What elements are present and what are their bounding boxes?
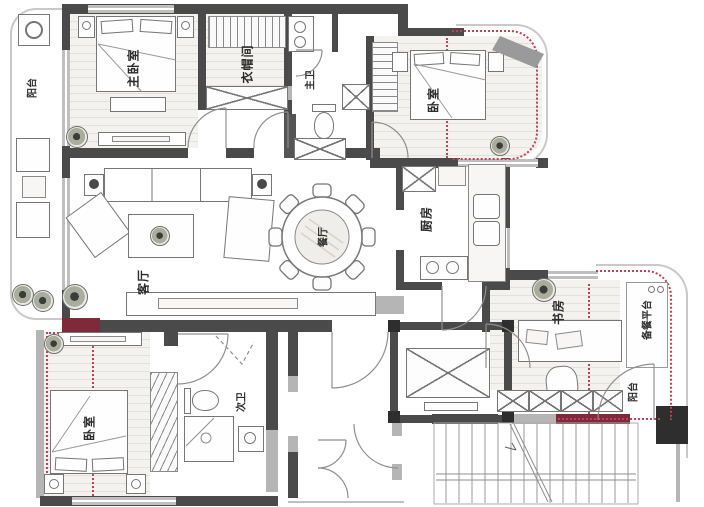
wall-hall-bottom — [226, 148, 254, 158]
study-sill-box — [529, 390, 561, 412]
door-corridor-top — [332, 332, 388, 388]
balcony-chair-1 — [16, 138, 50, 172]
cloakroom-cabinet — [206, 86, 288, 110]
window-master-top — [88, 5, 174, 13]
wardrobe-bedroom3 — [150, 372, 178, 472]
jamb-corridor-4 — [392, 464, 402, 480]
side-table-speaker — [89, 179, 99, 189]
papers — [525, 329, 548, 345]
study-sill-box — [593, 390, 623, 412]
shower-bath2 — [184, 416, 234, 462]
door-bedroom3 — [178, 334, 228, 384]
study-sill-box — [561, 390, 593, 412]
balcony-chair-2 — [16, 202, 50, 238]
elevator-corner-1 — [388, 320, 400, 332]
wall-master-bottom — [62, 148, 188, 158]
red-line-balcony-right — [558, 418, 660, 420]
washing-machine-drum — [25, 21, 43, 39]
wall-elevator-left — [390, 322, 398, 423]
jamb-corridor-2 — [288, 436, 298, 452]
sink-basin — [294, 21, 306, 33]
room-label-bathroom-second: 次卫 — [233, 392, 248, 412]
nightstand — [392, 52, 408, 72]
toilet-bowl-master — [314, 112, 334, 139]
burner — [426, 261, 439, 274]
elevator-corner-3 — [388, 411, 400, 423]
nightstand — [488, 52, 504, 72]
jamb-corridor-1 — [288, 376, 298, 392]
toilet-tank-master — [312, 104, 336, 112]
side-table-speaker — [257, 179, 267, 189]
lamp — [181, 21, 190, 30]
wall-kitchen-bottom-left — [398, 282, 442, 290]
wall-corridor-left-upper — [288, 330, 298, 376]
wall-bath-partition — [332, 14, 338, 52]
wall-bedroom-cloakroom — [198, 14, 206, 110]
pillow — [450, 52, 481, 66]
fridge — [402, 166, 436, 192]
bed-bench — [110, 97, 166, 112]
pillow — [140, 19, 173, 34]
room-label-living-room: 客厅 — [135, 269, 152, 295]
pillow — [414, 52, 445, 66]
wall-living-maroon — [62, 318, 100, 332]
window-bedroom3-bottom — [72, 497, 176, 505]
kitchen-counter-top — [438, 166, 466, 186]
study-sill-box — [497, 390, 529, 412]
tv-set — [158, 298, 298, 309]
elevator-corner-4 — [502, 411, 514, 423]
armchair-right — [223, 196, 274, 262]
toilet-tank-bath2 — [184, 388, 191, 414]
lamp — [49, 479, 59, 489]
burner — [446, 261, 459, 274]
lamp — [82, 21, 91, 30]
wall-bedroom3-top-block — [164, 330, 178, 346]
kitchen-sink-2 — [473, 221, 500, 246]
pillow — [55, 457, 88, 472]
clothes-rail — [208, 16, 286, 48]
elevator-shaft — [406, 348, 490, 398]
room-label-study: 书房 — [550, 299, 567, 325]
wall-elevator-bottom — [390, 415, 512, 423]
kitchen-sink-1 — [473, 194, 500, 219]
room-label-prep-platform: 备餐平台 — [639, 300, 654, 340]
wall-bath2-right-gray — [266, 430, 278, 492]
door-bath2-folding — [216, 336, 254, 364]
wall-corridor-left-lower — [288, 452, 298, 498]
toilet-bowl-bath2 — [192, 390, 219, 411]
floor-plan-canvas: 阳台 主卧室 衣帽间 主卫 卧室 客厅 餐厅 厨房 书房 备餐平台 阳台 卧室 … — [0, 0, 704, 507]
prep-knob — [657, 286, 664, 293]
elevator-door — [424, 402, 478, 411]
wall-joint-top — [398, 4, 408, 36]
plant-balcony-2 — [32, 290, 54, 312]
dresser-inner — [112, 136, 170, 142]
door-corridor-bottom — [318, 468, 348, 498]
room-label-bedroom-upper-right: 卧室 — [425, 87, 442, 113]
balcony-table — [22, 176, 46, 198]
bath-cabinet — [294, 138, 346, 160]
pillow — [92, 457, 125, 472]
wall-elevator-top — [390, 322, 512, 330]
room-label-bedroom-lower-left: 卧室 — [81, 415, 98, 441]
window-study-top — [548, 271, 598, 279]
pillow — [101, 19, 134, 34]
room-label-kitchen: 厨房 — [418, 206, 435, 232]
door-cloakroom-hall — [254, 112, 288, 148]
shaft-box — [342, 84, 370, 110]
plant-balcony-1 — [12, 284, 34, 306]
sink-basin — [244, 432, 256, 444]
room-label-balcony-left: 阳台 — [24, 78, 39, 98]
prep-knob — [648, 286, 655, 293]
wall-bath2-right — [266, 330, 278, 430]
lamp — [131, 479, 141, 489]
plant-coffee-table — [150, 226, 170, 246]
room-label-cloakroom: 衣帽间 — [239, 44, 256, 83]
room-label-dining-room: 餐厅 — [315, 227, 330, 247]
door-corridor-mid — [318, 440, 346, 468]
room-label-balcony-right: 阳台 — [625, 382, 640, 402]
red-line-bedroom3-left — [46, 336, 48, 492]
room-label-master-bathroom: 主卫 — [302, 70, 317, 90]
bedroom3-cabinet-inner — [70, 336, 126, 342]
right-outer-wall-lower — [676, 444, 680, 502]
sink-basin — [294, 36, 306, 48]
elevator-corner-2 — [502, 320, 514, 332]
left-outer-wall-lower — [36, 330, 44, 498]
room-label-master-bedroom: 主卧室 — [125, 48, 142, 87]
window-living-balcony — [62, 178, 70, 290]
plant-master — [66, 126, 88, 148]
plant-living — [62, 284, 88, 310]
plant-bedroom3 — [44, 334, 64, 354]
plant-bedroom2 — [490, 136, 510, 156]
wall-under-study-gray — [512, 414, 558, 424]
